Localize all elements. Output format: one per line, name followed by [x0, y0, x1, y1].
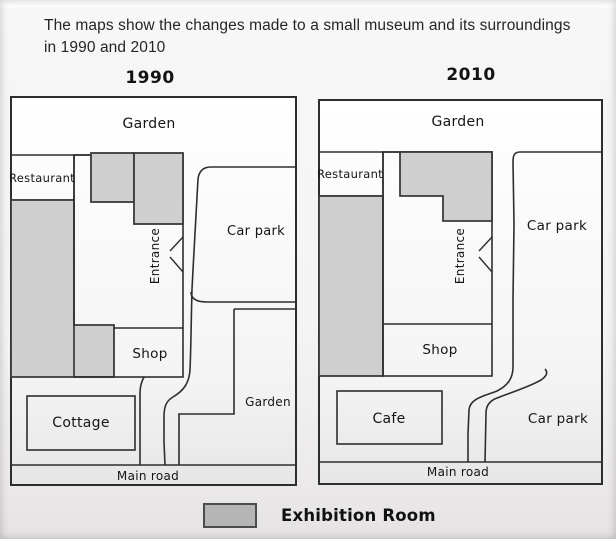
cottage-label: Cottage	[52, 415, 110, 431]
restaurant-label: Restaurant	[10, 171, 75, 185]
map-1990-heading: 1990	[95, 68, 205, 88]
shop-label: Shop	[132, 346, 167, 362]
cafe-label: Cafe	[372, 411, 405, 427]
legend-label: Exhibition Room	[281, 506, 436, 525]
main-road-label: Main road	[427, 465, 489, 479]
main-road-label: Main road	[117, 469, 179, 483]
map-2010-heading: 2010	[416, 65, 526, 85]
legend: Exhibition Room	[203, 502, 436, 529]
exhibition-room-top-large-shape	[134, 153, 183, 224]
garden-top-label: Garden	[431, 114, 484, 130]
map-2010: Garden Restaurant Car park Entrance Shop…	[318, 99, 603, 485]
restaurant-label: Restaurant	[318, 167, 383, 181]
entrance-label: Entrance	[453, 228, 467, 284]
exhibition-room-top-small-shape	[91, 153, 134, 202]
garden-bottom-label: Garden	[245, 395, 291, 409]
garden-top-label: Garden	[122, 116, 175, 132]
exhibition-room-left-shape	[319, 196, 383, 376]
exhibition-room-swatch	[203, 503, 257, 528]
map-1990: Garden Restaurant Car park Entrance Shop…	[10, 96, 297, 486]
car-park-top-label: Car park	[527, 218, 587, 234]
car-park-bottom-label: Car park	[528, 411, 588, 427]
shop-label: Shop	[422, 342, 457, 358]
page-title: The maps show the changes made to a smal…	[44, 15, 574, 59]
entrance-label: Entrance	[148, 228, 162, 284]
car-park-label: Car park	[227, 224, 285, 239]
